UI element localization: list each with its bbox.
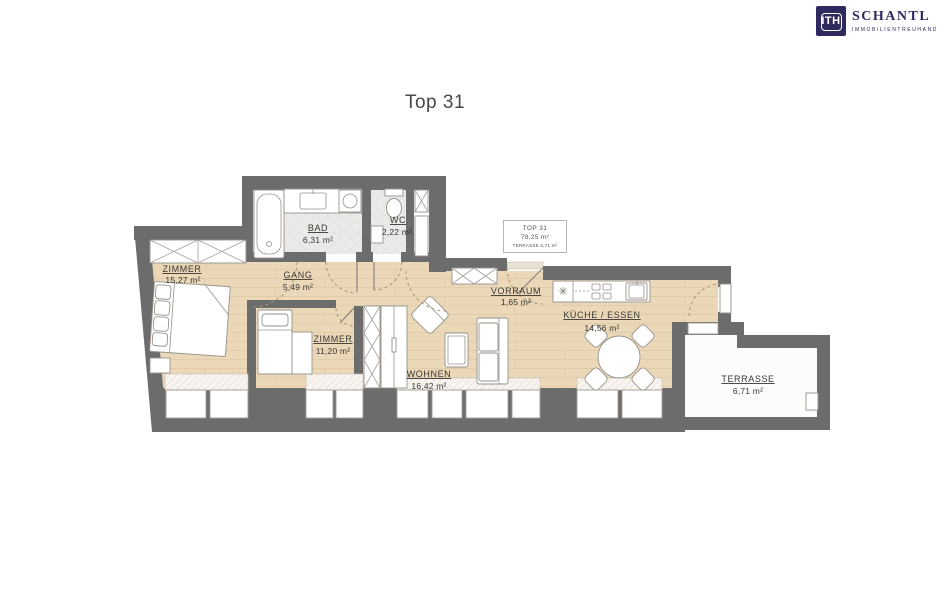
nightstand <box>150 358 170 373</box>
pillow <box>152 332 168 346</box>
coffee-table <box>445 333 468 367</box>
pillow <box>154 301 170 316</box>
room-area-wc: 2,22 m² <box>382 227 412 237</box>
wall <box>737 335 830 348</box>
dining-table <box>598 336 640 378</box>
room-area-zimmer1: 15,27 m² <box>165 275 200 285</box>
window <box>466 390 508 418</box>
room-area-wohnen: 16,42 m² <box>411 381 446 391</box>
wall <box>406 184 414 262</box>
toilet-cistern <box>385 189 403 196</box>
vorraum-closet <box>452 268 497 284</box>
window <box>512 390 540 418</box>
wall <box>672 322 685 430</box>
wall <box>429 176 446 272</box>
wall <box>134 226 248 240</box>
window <box>166 390 206 418</box>
floorplan-page: ITH SCHANTL IMMOBILIENTREUHAND Top 31 TO… <box>0 0 950 604</box>
kitchen-counter <box>553 281 650 302</box>
wall <box>362 188 371 252</box>
sofa <box>477 318 508 384</box>
room-label-terrasse: TERRASSE <box>721 374 774 384</box>
room-area-bad: 6,31 m² <box>303 235 333 245</box>
window <box>432 390 462 418</box>
sofa-cushion <box>479 353 498 381</box>
window <box>622 390 662 418</box>
room-label-kueche: KÜCHE / ESSEN <box>563 310 640 320</box>
room-label-bad: BAD <box>308 223 328 233</box>
wall <box>817 335 830 430</box>
room-area-zimmer2: 11,20 m² <box>316 346 351 356</box>
vent-icon <box>559 287 567 295</box>
wardrobe-hall <box>364 306 407 388</box>
window <box>306 390 333 418</box>
room-area-vorraum: 1,65 m² <box>501 297 531 307</box>
window <box>577 390 618 418</box>
pillow <box>155 285 171 300</box>
radiator <box>306 374 363 390</box>
terrace-wall-notch <box>806 393 818 410</box>
room-area-gang: 5,49 m² <box>283 282 313 292</box>
wall <box>247 300 336 308</box>
room-area-kueche: 14,56 m² <box>584 323 619 333</box>
radiator <box>165 374 248 390</box>
single-bed <box>258 310 292 374</box>
terrace-window <box>688 323 718 334</box>
floor-plan: ZIMMER 15,27 m² GANG 5,49 m² BAD 6,31 m²… <box>0 0 950 604</box>
wardrobe-handle <box>392 338 396 352</box>
bathtub <box>254 190 284 258</box>
room-label-zimmer2: ZIMMER <box>313 334 352 344</box>
shaft-box <box>415 216 428 256</box>
desk <box>292 332 312 374</box>
room-label-vorraum: VORRAUM <box>491 286 541 296</box>
room-label-zimmer1: ZIMMER <box>162 264 201 274</box>
shaft <box>415 190 428 256</box>
double-bed <box>150 281 231 356</box>
room-area-terrasse: 6,71 m² <box>733 386 763 396</box>
room-label-wc: WC <box>390 215 406 225</box>
wall <box>672 417 830 430</box>
window <box>210 390 248 418</box>
washing-machine <box>339 190 361 212</box>
pillow <box>153 316 169 331</box>
pillow <box>262 314 288 326</box>
room-label-wohnen: WOHNEN <box>407 369 452 379</box>
wall <box>242 176 446 190</box>
terrace-door <box>720 284 731 313</box>
window <box>336 390 363 418</box>
window <box>397 390 428 418</box>
room-label-gang: GANG <box>284 270 313 280</box>
wall <box>247 300 256 388</box>
entry-threshold <box>507 262 543 269</box>
sofa-cushion <box>479 323 498 351</box>
wardrobe-zimmer1 <box>150 240 246 263</box>
wall <box>356 252 373 262</box>
wall <box>543 266 731 280</box>
